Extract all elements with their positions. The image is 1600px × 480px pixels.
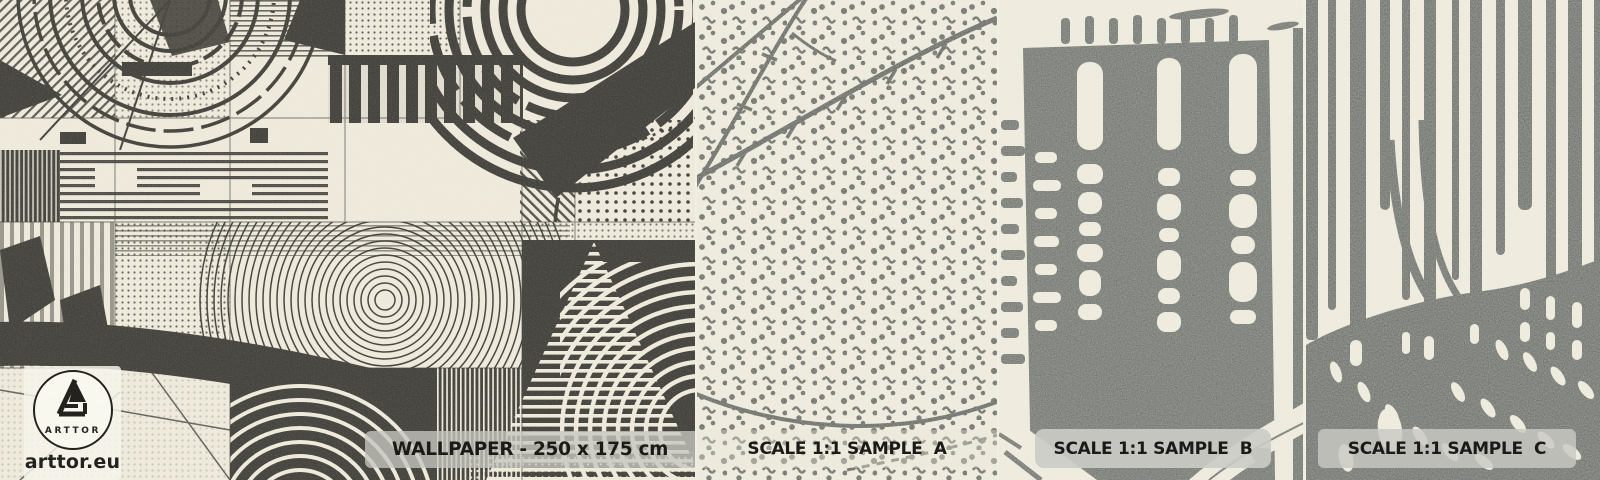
- wallpaper-size-band: WALLPAPER - 250 x 175 cm: [365, 431, 695, 468]
- sample-a-artwork: [697, 0, 997, 480]
- sample-a-panel: SCALE 1:1 SAMPLE A: [695, 0, 997, 480]
- wallpaper-preview-panel: WALLPAPER - 250 x 175 cm ARTTOR arttor.e…: [0, 0, 695, 480]
- wallpaper-size-label: WALLPAPER - 250 x 175 cm: [392, 439, 668, 460]
- logo-site-text: arttor.eu: [24, 453, 121, 472]
- sample-c-panel: SCALE 1:1 SAMPLE C: [1303, 0, 1600, 480]
- sample-b-panel: SCALE 1:1 SAMPLE B: [997, 0, 1305, 480]
- sample-c-artwork: [1306, 0, 1600, 480]
- sample-b-label-band: SCALE 1:1 SAMPLE B: [1035, 429, 1271, 468]
- sample-b-label: SCALE 1:1 SAMPLE B: [1054, 439, 1253, 459]
- arttor-logo-mark: ARTTOR: [25, 366, 121, 454]
- sample-c-label: SCALE 1:1 SAMPLE C: [1348, 439, 1546, 459]
- sample-b-artwork: [999, 0, 1305, 480]
- sample-a-label: SCALE 1:1 SAMPLE A: [747, 439, 946, 459]
- sample-a-label-band: SCALE 1:1 SAMPLE A: [697, 430, 997, 468]
- sample-c-label-band: SCALE 1:1 SAMPLE C: [1318, 429, 1576, 468]
- logo-brand-text: ARTTOR: [44, 426, 100, 436]
- arttor-logo: ARTTOR arttor.eu: [24, 366, 121, 480]
- product-image: WALLPAPER - 250 x 175 cm ARTTOR arttor.e…: [0, 0, 1600, 480]
